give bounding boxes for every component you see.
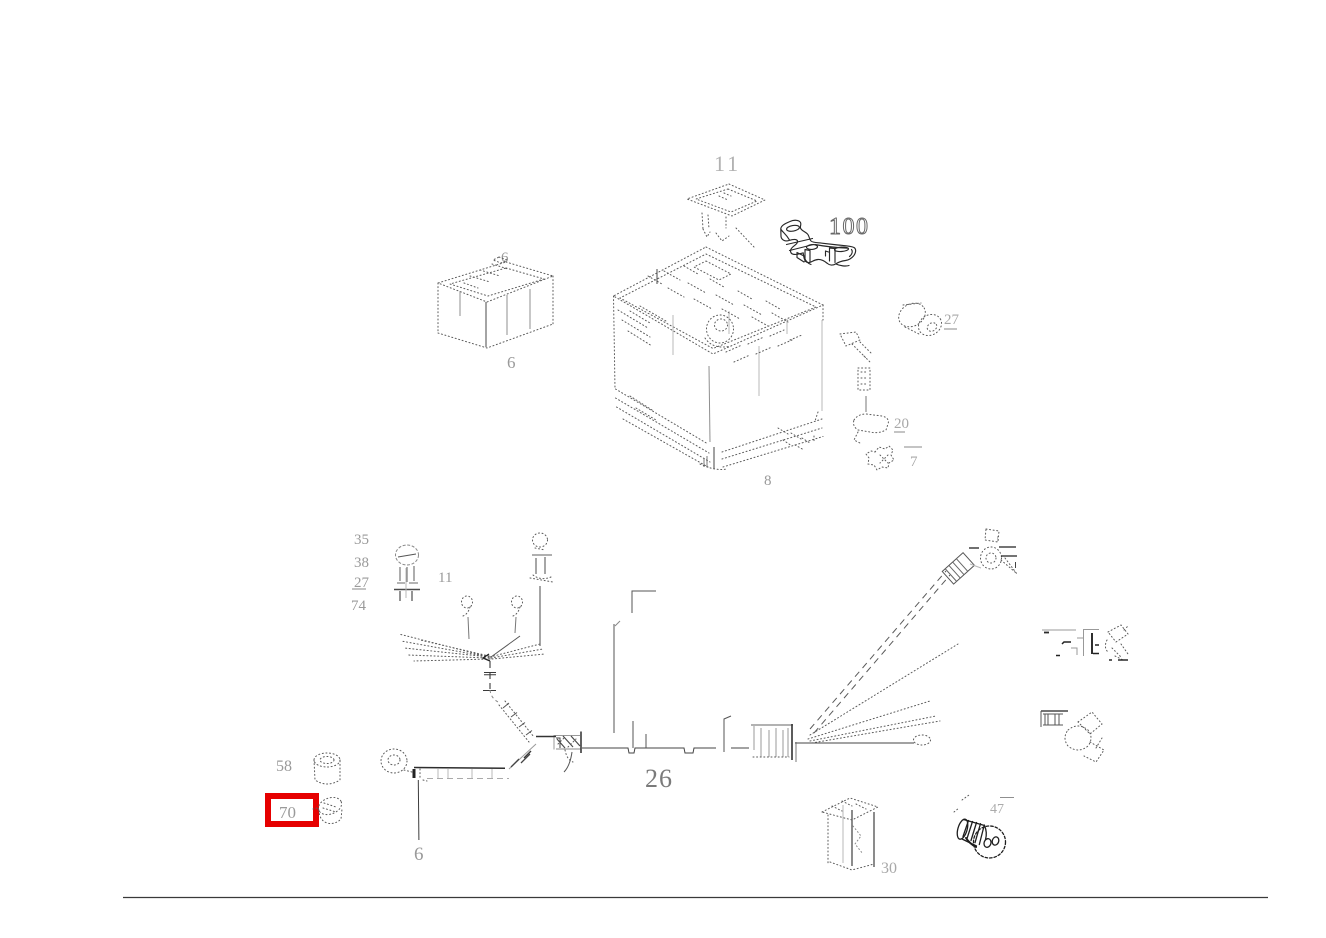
svg-text:100: 100 xyxy=(829,214,870,240)
svg-text:11: 11 xyxy=(714,151,741,176)
svg-text:47: 47 xyxy=(990,802,1004,817)
svg-text:8: 8 xyxy=(764,473,772,489)
svg-text:7: 7 xyxy=(910,454,918,470)
svg-text:35: 35 xyxy=(354,532,369,548)
svg-text:38: 38 xyxy=(354,555,369,571)
svg-text:70: 70 xyxy=(279,803,296,822)
svg-text:20: 20 xyxy=(894,416,909,432)
svg-text:11: 11 xyxy=(438,570,452,586)
svg-text:27: 27 xyxy=(944,312,960,328)
svg-text:74: 74 xyxy=(351,598,367,614)
svg-text:26: 26 xyxy=(645,764,673,793)
svg-text:6: 6 xyxy=(507,353,516,372)
svg-text:30: 30 xyxy=(881,860,897,877)
svg-text:58: 58 xyxy=(276,758,292,775)
svg-text:6: 6 xyxy=(414,844,424,865)
